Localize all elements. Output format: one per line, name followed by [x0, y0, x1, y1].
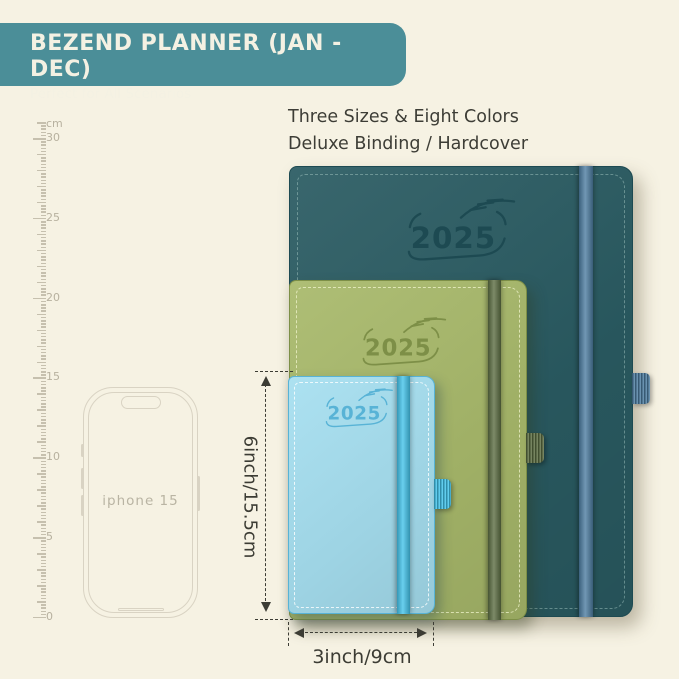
ruler-tick — [41, 285, 46, 287]
ruler-tick — [41, 157, 46, 159]
ruler-tick — [37, 170, 46, 172]
ruler-tick — [41, 476, 46, 478]
ruler-tick — [33, 377, 46, 379]
ruler-tick — [41, 470, 46, 472]
ruler-tick — [41, 579, 46, 581]
year-logo: 2025 — [396, 193, 526, 265]
phone-outline: iphone 15 — [83, 387, 198, 618]
ruler-tick — [41, 607, 46, 609]
logo-right-arc — [382, 397, 387, 405]
ruler-tick — [33, 218, 46, 220]
ruler-tick — [41, 320, 46, 322]
ruler-tick — [41, 352, 46, 354]
ruler-tick — [41, 435, 46, 437]
ruler-tick — [41, 397, 46, 399]
ruler-tick — [41, 400, 46, 402]
ruler-tick — [41, 339, 46, 341]
ruler-label: 25 — [46, 212, 60, 224]
ruler-tick — [41, 227, 46, 229]
ruler-tick — [41, 595, 46, 597]
ruler-tick — [41, 499, 46, 501]
header-banner: BEZEND PLANNER (JAN - DEC) Perfect for A… — [0, 23, 406, 86]
ruler-tick — [41, 358, 46, 360]
elastic-band — [488, 280, 501, 620]
ruler-tick — [41, 167, 46, 169]
ruler-tick — [41, 279, 46, 281]
ruler-tick — [41, 483, 46, 485]
ruler-tick — [41, 461, 46, 463]
ruler-tick — [41, 524, 46, 526]
header-subtitle: Perfect for All Scenarios — [30, 86, 406, 102]
ruler-tick — [41, 160, 46, 162]
ruler-tick — [33, 138, 46, 140]
ruler-tick — [37, 154, 46, 156]
ruler-tick — [37, 601, 46, 603]
ruler-tick — [41, 176, 46, 178]
pen-loop — [434, 479, 451, 509]
phone-power-button — [197, 476, 200, 511]
ruler-tick — [41, 438, 46, 440]
ruler-tick — [37, 330, 46, 332]
ruler-tick — [37, 569, 46, 571]
ruler-tick — [41, 508, 46, 510]
ruler-tick — [41, 288, 46, 290]
ruler-tick — [41, 413, 46, 415]
ruler-tick — [37, 441, 46, 443]
ruler-tick — [41, 221, 46, 223]
year-logo: 2025 — [354, 313, 454, 369]
width-extension-left — [288, 622, 289, 646]
ruler-tick — [41, 448, 46, 450]
ruler-tick — [41, 496, 46, 498]
ruler-tick — [37, 250, 46, 252]
ruler-tick — [41, 502, 46, 504]
arrow-down-icon — [261, 602, 271, 612]
ruler-tick — [41, 269, 46, 271]
arrow-up-icon — [261, 376, 271, 386]
ruler-tick — [41, 240, 46, 242]
ruler-tick — [41, 183, 46, 185]
height-extension-top — [255, 371, 293, 372]
ruler-tick — [41, 199, 46, 201]
ruler-tick — [41, 151, 46, 153]
logo-year: 2025 — [365, 336, 431, 362]
ruler-tick — [41, 349, 46, 351]
ruler-tick — [41, 141, 46, 143]
ruler-tick — [41, 422, 46, 424]
ruler-tick — [41, 467, 46, 469]
ruler-tick — [41, 323, 46, 325]
ruler-tick — [41, 512, 46, 514]
ruler-tick — [41, 275, 46, 277]
ruler-label: 20 — [46, 292, 60, 304]
ruler-tick — [41, 365, 46, 367]
ruler-tick — [37, 553, 46, 555]
ruler-tick — [41, 416, 46, 418]
ruler-tick — [41, 560, 46, 562]
phone-volume-down-button — [81, 495, 84, 516]
ruler-tick — [37, 362, 46, 364]
ruler-tick — [41, 572, 46, 574]
ruler-tick — [41, 384, 46, 386]
pen-loop — [632, 373, 650, 404]
ruler-tick — [41, 515, 46, 517]
ruler-tick — [37, 473, 46, 475]
ruler-tick — [41, 387, 46, 389]
ruler-tick — [37, 489, 46, 491]
ruler-tick — [37, 409, 46, 411]
height-dimension-label: 6inch/15.5cm — [240, 436, 261, 559]
width-dimension-line — [305, 632, 417, 633]
ruler-tick — [33, 537, 46, 539]
headline: Three Sizes & Eight Colors Deluxe Bindin… — [288, 104, 528, 158]
ruler-tick — [41, 492, 46, 494]
ruler-tick — [41, 563, 46, 565]
pen-loop — [526, 433, 544, 463]
ruler-tick — [41, 224, 46, 226]
ruler-tick — [41, 317, 46, 319]
ruler-tick — [41, 540, 46, 542]
ruler-tick — [41, 518, 46, 520]
ruler-tick — [41, 310, 46, 312]
ruler-tick — [41, 189, 46, 191]
product-size-infographic: BEZEND PLANNER (JAN - DEC) Perfect for A… — [0, 0, 679, 679]
ruler-tick — [41, 566, 46, 568]
arrow-left-icon — [294, 628, 304, 638]
ruler-tick — [37, 521, 46, 523]
logo-right-arc — [497, 212, 506, 224]
ruler-tick — [41, 550, 46, 552]
width-dimension-label: 3inch/9cm — [312, 646, 411, 668]
ruler-tick — [41, 419, 46, 421]
ruler-tick — [41, 192, 46, 194]
ruler-tick — [41, 591, 46, 593]
ruler-tick — [41, 205, 46, 207]
ruler-tick — [41, 208, 46, 210]
phone-label: iphone 15 — [84, 493, 197, 509]
ruler-tick — [37, 266, 46, 268]
ruler-tick — [41, 390, 46, 392]
ruler-tick — [41, 445, 46, 447]
ruler-tick — [41, 256, 46, 258]
ruler-tick — [41, 243, 46, 245]
ruler-tick — [41, 432, 46, 434]
ruler-tick — [41, 148, 46, 150]
ruler-tick — [41, 128, 46, 130]
ruler-tick — [41, 342, 46, 344]
ruler-tick — [37, 425, 46, 427]
ruler-tick — [41, 598, 46, 600]
ruler-tick — [41, 556, 46, 558]
ruler-tick — [41, 368, 46, 370]
ruler-label: 15 — [46, 371, 60, 383]
ruler-tick — [41, 547, 46, 549]
ruler-tick — [37, 202, 46, 204]
ruler-label: 30 — [46, 132, 60, 144]
ruler-tick — [37, 346, 46, 348]
ruler-tick — [37, 122, 46, 124]
ruler-tick — [37, 282, 46, 284]
height-dimension-line — [265, 384, 266, 606]
ruler-tick — [41, 253, 46, 255]
ruler-tick — [41, 164, 46, 166]
width-extension-right — [433, 622, 434, 646]
ruler-tick — [41, 259, 46, 261]
headline-line-2: Deluxe Binding / Hardcover — [288, 131, 528, 158]
ruler-tick — [41, 272, 46, 274]
planner-small: 2025 — [288, 376, 435, 614]
headline-line-1: Three Sizes & Eight Colors — [288, 104, 528, 131]
ruler-label: 0 — [46, 611, 53, 623]
logo-year: 2025 — [411, 221, 497, 255]
ruler-label: 10 — [46, 451, 60, 463]
ruler-tick — [41, 326, 46, 328]
ruler-tick — [37, 234, 46, 236]
ruler-tick — [37, 186, 46, 188]
phone-bottom-port — [118, 608, 164, 611]
ruler-tick — [41, 486, 46, 488]
ruler-tick — [33, 457, 46, 459]
ruler-tick — [41, 588, 46, 590]
ruler-tick — [41, 173, 46, 175]
ruler-tick — [41, 528, 46, 530]
ruler-tick — [41, 381, 46, 383]
ruler-tick — [37, 314, 46, 316]
dynamic-island — [121, 396, 161, 409]
ruler-unit-label: cm — [46, 117, 63, 130]
ruler-tick — [41, 355, 46, 357]
ruler-tick — [41, 333, 46, 335]
ruler-tick — [41, 582, 46, 584]
ruler-tick — [41, 180, 46, 182]
ruler-tick — [41, 144, 46, 146]
ruler-tick — [41, 544, 46, 546]
logo-year: 2025 — [328, 403, 381, 424]
height-extension-bottom — [255, 619, 293, 620]
ruler-tick — [37, 585, 46, 587]
ruler-tick — [41, 304, 46, 306]
ruler-tick — [41, 336, 46, 338]
logo-right-arc — [432, 328, 439, 338]
ruler-tick — [41, 125, 46, 127]
ruler-tick — [37, 505, 46, 507]
year-logo: 2025 — [319, 385, 399, 430]
elastic-band — [579, 166, 593, 617]
ruler-tick — [41, 231, 46, 233]
phone-volume-up-button — [81, 468, 84, 489]
ruler-tick — [41, 480, 46, 482]
ruler-tick — [41, 263, 46, 265]
ruler-tick — [41, 464, 46, 466]
ruler-tick — [41, 195, 46, 197]
ruler-tick — [33, 298, 46, 300]
ruler-tick — [41, 237, 46, 239]
header-title: BEZEND PLANNER (JAN - DEC) — [30, 31, 406, 83]
ruler-tick — [33, 617, 46, 619]
ruler-tick — [41, 429, 46, 431]
ruler-label: 5 — [46, 531, 53, 543]
ruler-tick — [41, 604, 46, 606]
phone-action-button — [81, 444, 84, 457]
ruler-tick — [41, 403, 46, 405]
ruler-tick — [41, 307, 46, 309]
ruler-tick — [37, 393, 46, 395]
ruler-tick — [41, 575, 46, 577]
ruler-tick — [41, 247, 46, 249]
ruler-tick — [41, 301, 46, 303]
ruler-tick — [41, 406, 46, 408]
arrow-right-icon — [417, 628, 427, 638]
